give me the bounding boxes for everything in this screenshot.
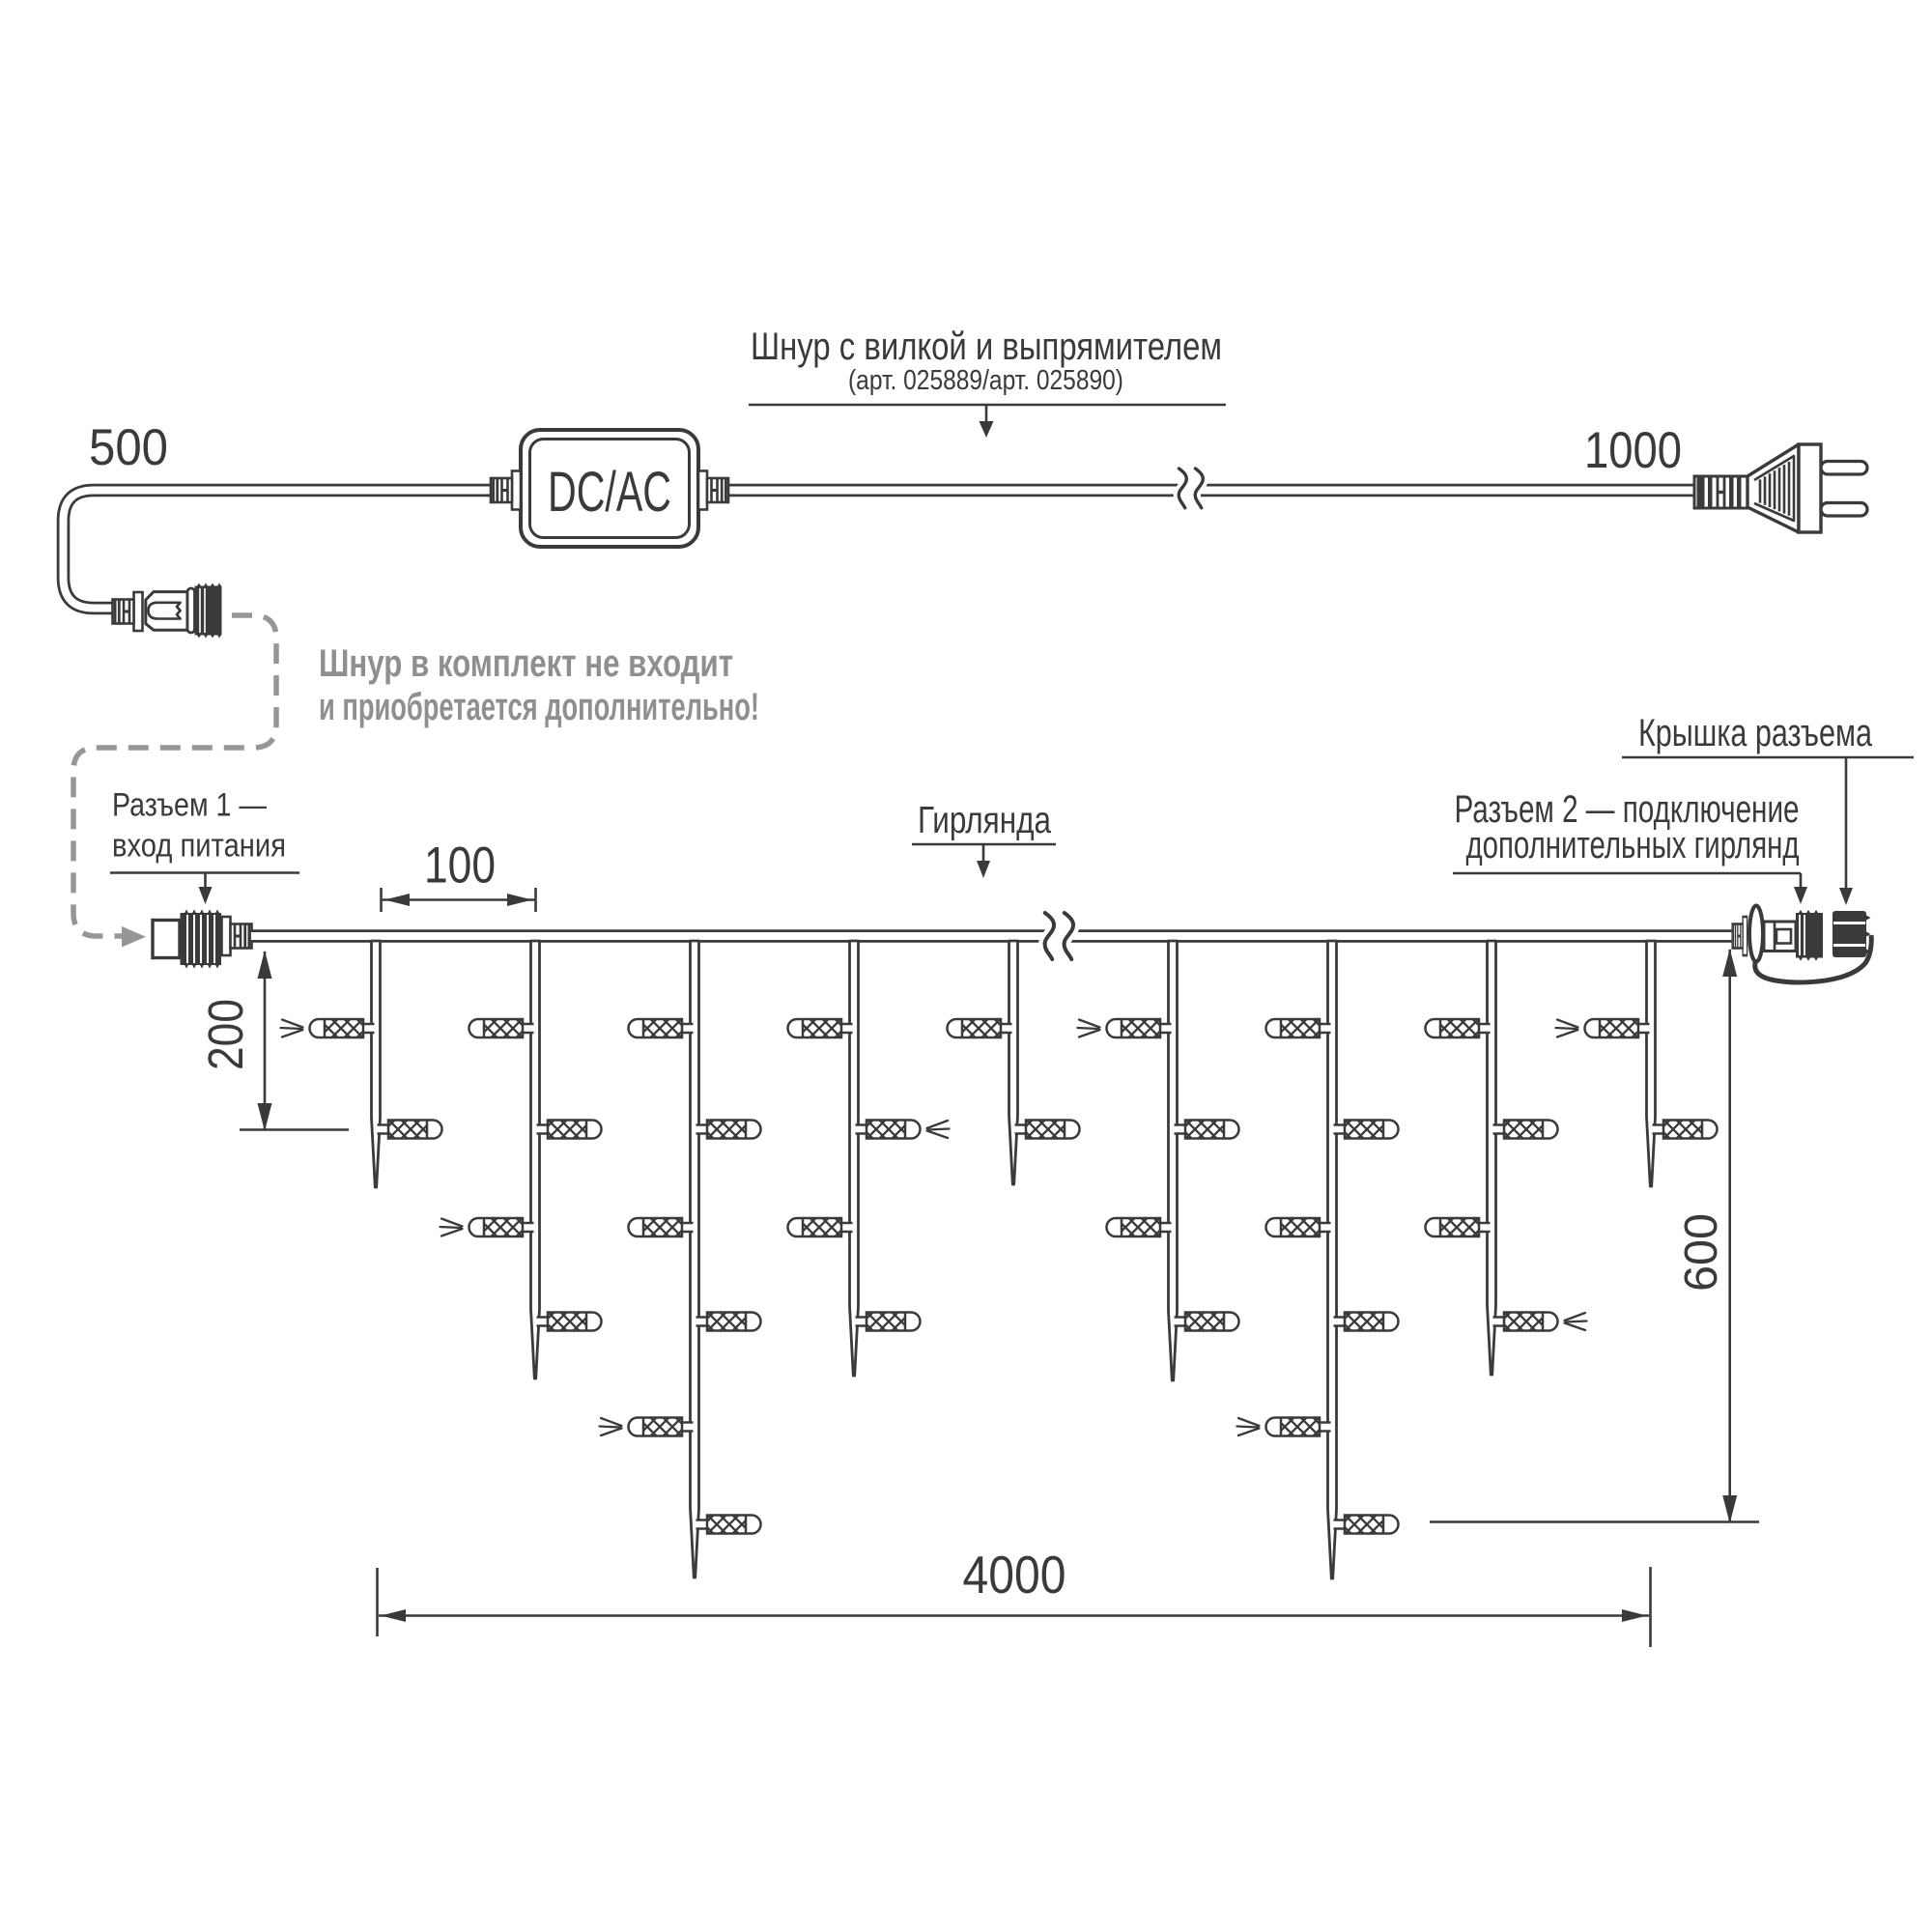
- svg-text:Шнур в комплект не входит: Шнур в комплект не входит: [319, 642, 733, 685]
- svg-text:(арт. 025889/арт. 025890): (арт. 025889/арт. 025890): [848, 365, 1123, 396]
- svg-text:1000: 1000: [1584, 422, 1682, 479]
- svg-text:дополнительных гирлянд: дополнительных гирлянд: [1466, 824, 1800, 867]
- svg-text:Крышка разъема: Крышка разъема: [1638, 712, 1873, 754]
- svg-text:вход питания: вход питания: [112, 828, 286, 865]
- svg-text:4000: 4000: [963, 1545, 1066, 1605]
- svg-text:500: 500: [89, 419, 168, 476]
- svg-text:Шнур с вилкой и выпрямителем: Шнур с вилкой и выпрямителем: [751, 326, 1222, 368]
- svg-text:и приобретается дополнительно!: и приобретается дополнительно!: [319, 686, 759, 728]
- svg-text:600: 600: [1676, 1213, 1727, 1292]
- svg-text:Разъем 1 —: Разъем 1 —: [112, 787, 267, 824]
- svg-text:100: 100: [424, 838, 496, 895]
- svg-text:200: 200: [198, 999, 253, 1070]
- svg-text:DC/AC: DC/AC: [548, 461, 671, 524]
- svg-text:Гирлянда: Гирлянда: [918, 800, 1051, 841]
